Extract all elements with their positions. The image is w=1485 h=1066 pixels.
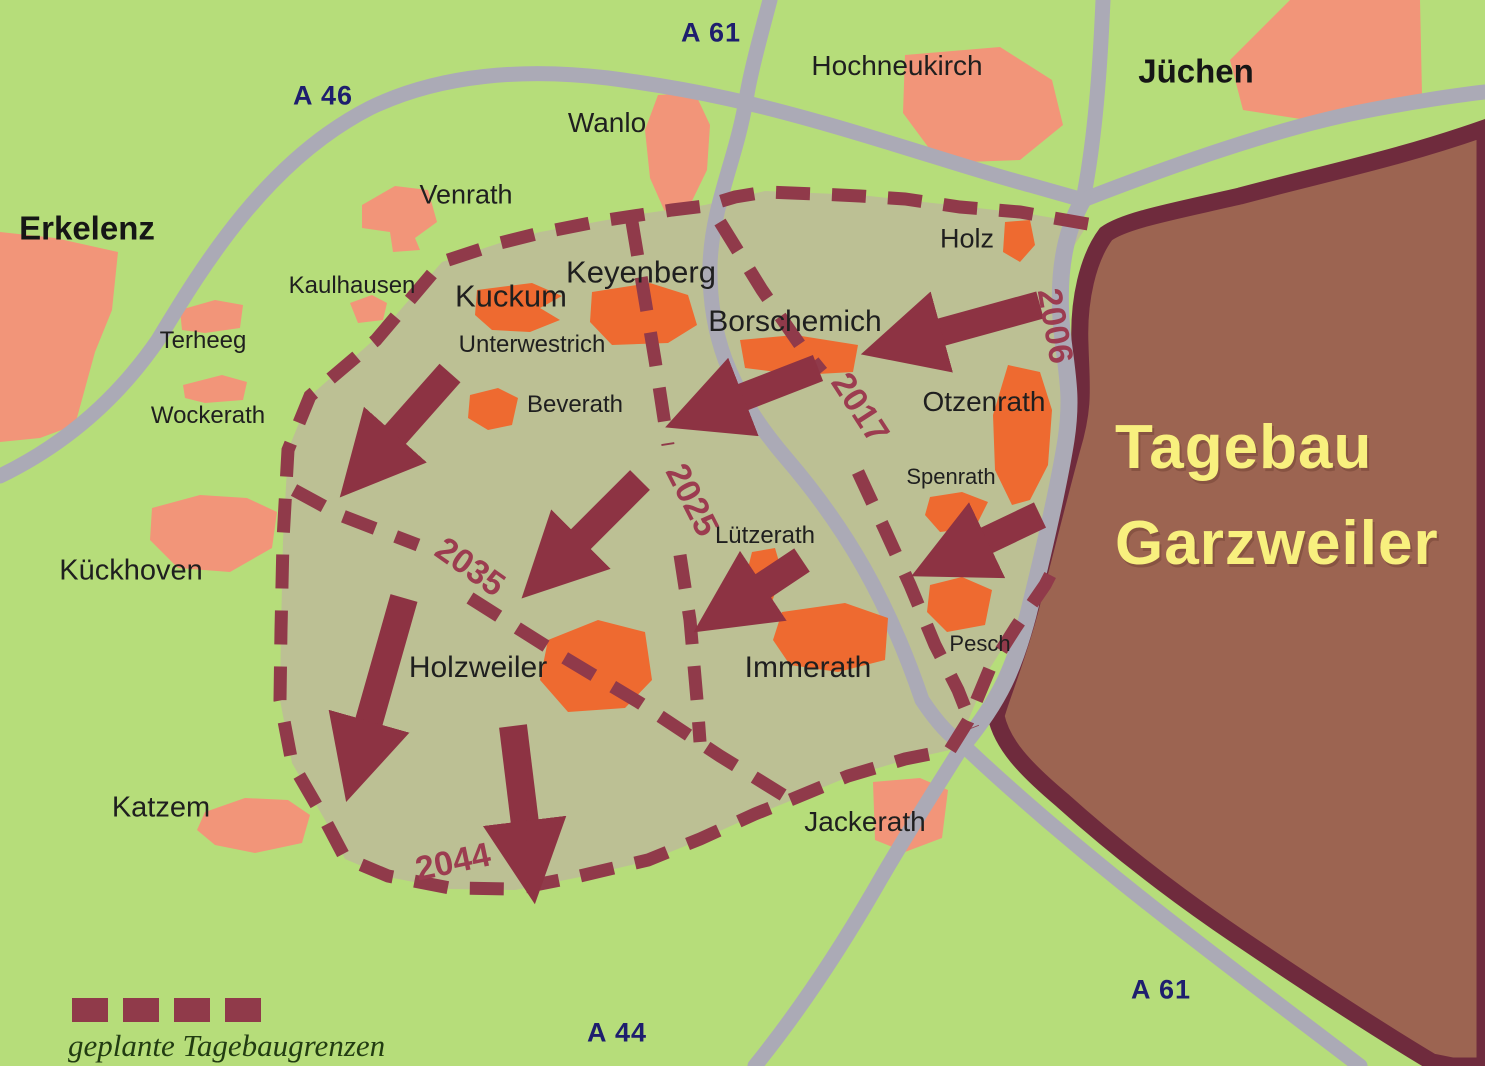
place-label-beverath: Beverath bbox=[527, 393, 623, 417]
place-label-wanlo: Wanlo bbox=[568, 109, 646, 137]
place-label-katzem: Katzem bbox=[112, 794, 210, 823]
place-label-keyenberg: Keyenberg bbox=[566, 257, 716, 288]
highway-label-a61_bottom: A 61 bbox=[1131, 977, 1191, 1004]
place-label-wockerath: Wockerath bbox=[151, 404, 265, 428]
place-label-luetzerath: Lützerath bbox=[715, 524, 815, 548]
place-label-juechen: Jüchen bbox=[1138, 55, 1254, 88]
highway-label-a44: A 44 bbox=[587, 1020, 647, 1047]
place-label-kaulhausen: Kaulhausen bbox=[289, 274, 416, 298]
place-label-spenrath: Spenrath bbox=[906, 466, 995, 488]
place-label-venrath: Venrath bbox=[419, 182, 512, 209]
place-label-kueckhoven: Kückhoven bbox=[59, 557, 203, 586]
place-label-holzweiler: Holzweiler bbox=[409, 653, 547, 683]
mine-title-line1: Tagebau bbox=[1115, 412, 1372, 483]
place-label-kuckum: Kuckum bbox=[455, 281, 567, 312]
place-label-erkelenz: Erkelenz bbox=[19, 212, 155, 245]
place-label-unterwestrich: Unterwestrich bbox=[459, 333, 606, 357]
place-label-holz: Holz bbox=[940, 226, 994, 253]
place-label-otzenrath: Otzenrath bbox=[923, 388, 1046, 416]
place-label-hochneukirch: Hochneukirch bbox=[811, 52, 982, 80]
mine-title-line2: Garzweiler bbox=[1115, 508, 1439, 579]
map-canvas: Tagebau Garzweiler geplante Tagebaugrenz… bbox=[0, 0, 1485, 1066]
place-label-jackerath: Jackerath bbox=[804, 808, 925, 836]
place-label-immerath: Immerath bbox=[745, 653, 872, 683]
highway-label-a46: A 46 bbox=[293, 83, 353, 110]
place-label-terheeg: Terheeg bbox=[160, 329, 247, 353]
place-label-borschemich: Borschemich bbox=[708, 307, 881, 337]
mining-arrow-holzweiler-south bbox=[513, 726, 526, 832]
highway-label-a61_top: A 61 bbox=[681, 20, 741, 47]
legend-caption: geplante Tagebaugrenzen bbox=[68, 1028, 385, 1064]
place-label-pesch: Pesch bbox=[949, 633, 1010, 655]
